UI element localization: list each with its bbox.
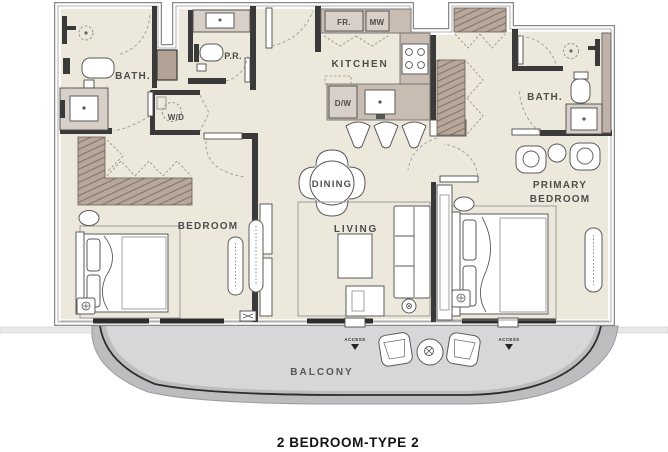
shower-glass [518,36,523,64]
shower-fixture [595,39,600,66]
bath-left-label: BATH. [115,71,151,82]
faucet [376,114,385,119]
toilet [571,79,590,103]
sofa [394,206,430,298]
wall [150,130,200,135]
stove [402,44,428,74]
balcony-door-threshold [498,318,518,327]
wall [188,78,226,84]
coffee-table [338,234,372,278]
wall [188,10,193,62]
sink-drain-dot [219,19,222,22]
balcony-label: BALCONY [290,367,353,378]
shower-fixture [588,46,595,50]
primary-bedroom-label-line2: BEDROOM [530,194,591,205]
shaft [157,50,177,80]
sink-drain-dot [378,100,381,103]
armchair [516,146,546,173]
hall-wardrobe-top [454,8,506,32]
hall-wardrobe-side [437,60,465,135]
fixture [63,58,70,74]
side-table [548,144,566,162]
washer-dryer-label: W/D [168,113,184,122]
entry-door-leaf [266,8,272,48]
primary-bedroom-label-line1: PRIMARY [533,180,587,191]
bedroom-label: BEDROOM [178,221,239,232]
floor-plan-canvas: BALCONY ACCESS ACCESS [0,0,668,452]
dishwasher-label: D/W [335,99,352,108]
toilet-tank [574,72,588,79]
sink-drain-dot [582,117,585,120]
door-leaf [440,176,478,182]
wall [517,66,563,71]
nightstand [79,211,99,226]
plan-title: 2 BEDROOM-TYPE 2 [277,435,419,450]
fixture [197,64,206,71]
door-leaf [512,129,540,135]
microwave-label: MW [370,18,385,27]
wall [150,90,200,95]
plumbing-wall [602,33,611,133]
bath-right-label: BATH. [527,92,563,103]
door-leaf [204,133,242,139]
door-leaf [245,58,250,82]
access-right-label: ACCESS [498,337,519,342]
dining-label: DINING [312,179,352,190]
wall [242,133,258,139]
wall [315,6,321,52]
fixture [84,80,94,88]
floor-plan-page: BALCONY ACCESS ACCESS [0,0,668,452]
kitchen-label: KITCHEN [331,59,388,70]
powder-room-label: P.R. [224,51,242,61]
wall [430,35,436,120]
fixture [60,100,65,118]
fridge-label: FR. [337,18,351,27]
nightstand [454,197,474,211]
wall [250,6,256,90]
sink-drain-dot [82,106,85,109]
outdoor-chair [378,332,413,367]
pillow [87,239,100,271]
toilet-tank [194,44,199,62]
living-label: LIVING [334,224,378,235]
bathtub [82,58,114,78]
wall [512,29,518,71]
access-left-label: ACCESS [344,337,365,342]
toilet [200,44,223,61]
balcony-floor [106,326,596,391]
shower-fixture [62,16,67,44]
balcony-door-threshold [345,318,365,327]
shower-fixture [67,26,76,30]
window [93,319,149,324]
wall [431,182,436,322]
pillow [463,220,476,260]
tall-wardrobe-unit [437,185,452,320]
balcony: BALCONY ACCESS ACCESS [0,326,668,404]
wall [152,6,157,88]
door-leaf [148,92,153,116]
shower-head-dot [84,31,87,34]
armchair [570,143,600,170]
window [160,319,224,324]
shower-head-dot [569,49,572,52]
outdoor-chair [446,332,481,367]
